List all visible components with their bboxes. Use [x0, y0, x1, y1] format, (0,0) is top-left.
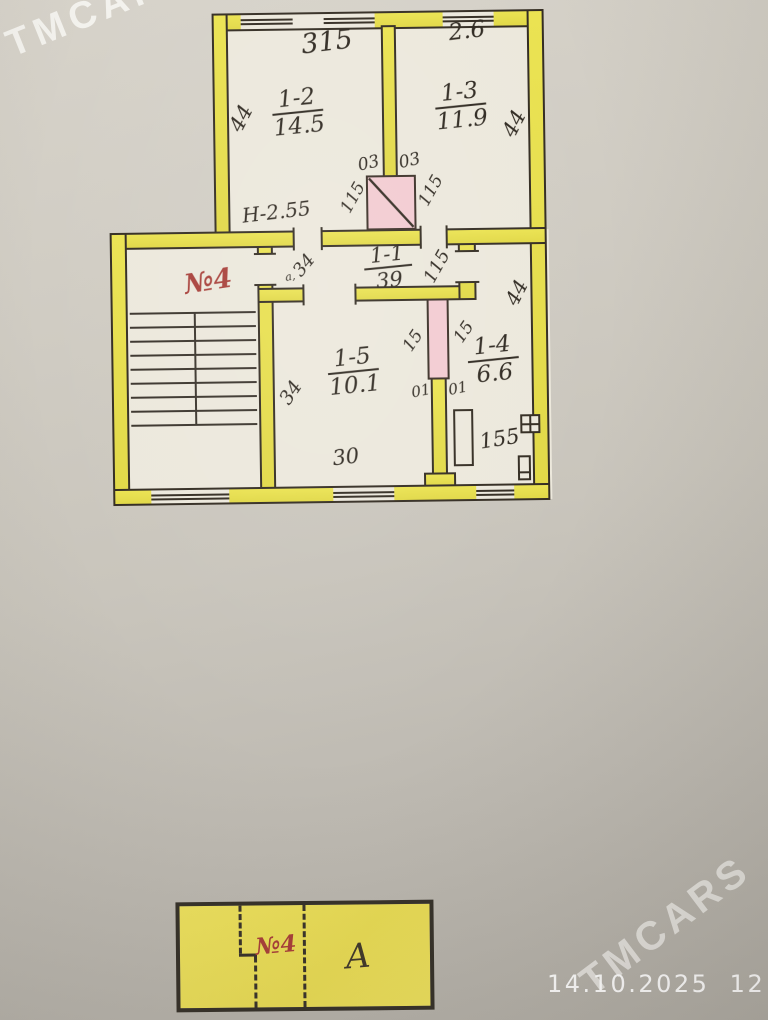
window-symbol: [151, 487, 229, 505]
dim-2-6: 2.6: [447, 16, 486, 46]
ventilation-shaft-icon: [366, 175, 417, 231]
key-plan: №4 А: [175, 900, 434, 1013]
dim-01-left: 01: [410, 380, 432, 401]
room-area: 11.9: [435, 105, 488, 135]
wall-between-1-2-and-1-3: [381, 25, 398, 177]
door-opening-room-1-3: [420, 225, 448, 248]
door-opening-room-1-2: [293, 227, 323, 250]
duct-shaft-icon: [427, 298, 450, 379]
room-1-5-label: 1-5 10.1: [325, 343, 381, 400]
room-1-4-label: 1-4 6.6: [465, 331, 521, 388]
key-plan-dashed-wall: [302, 905, 306, 1007]
room-1-3-label: 1-3 11.9: [433, 78, 489, 135]
room-1-1-label: 1-1 39: [362, 241, 414, 294]
door-opening-room-1-5: [302, 284, 356, 306]
dim-30: 30: [331, 443, 360, 470]
dim-315: 315: [300, 24, 355, 61]
key-plan-unit-number: №4: [254, 930, 297, 961]
key-plan-dashed-wall: [238, 906, 242, 954]
window-symbol: [476, 483, 514, 501]
wall-shaft-foot: [424, 472, 456, 486]
wall-below-shaft: [431, 377, 448, 484]
key-plan-block-letter: А: [344, 935, 373, 977]
room-area: 39: [364, 266, 414, 294]
room-1-2-label: 1-2 14.5: [270, 84, 326, 141]
timestamp: 14.10.2025 12:55: [547, 970, 768, 998]
room-area: 10.1: [328, 370, 381, 400]
room-area: 6.6: [468, 358, 521, 388]
window-symbol: [241, 12, 293, 31]
key-plan-dashed-wall: [254, 957, 258, 1008]
photo-background: 1-2 14.5 1-3 11.9 1-1 39 1-5 10.1 1-4 6.…: [0, 0, 768, 1020]
door-opening-room-1-4: [455, 250, 479, 283]
dim-a-mark: а,: [284, 269, 296, 284]
toilet-icon: [518, 455, 531, 480]
shaft-diagonal-line: [368, 177, 415, 229]
room-area: 14.5: [273, 111, 326, 141]
dim-01-right: 01: [447, 378, 469, 399]
window-symbol: [333, 485, 394, 503]
vent-grid-icon: [520, 414, 540, 433]
wall-left-upper: [212, 13, 231, 247]
bathtub-icon: [453, 409, 474, 466]
floor-plan: 1-2 14.5 1-3 11.9 1-1 39 1-5 10.1 1-4 6.…: [0, 0, 768, 525]
